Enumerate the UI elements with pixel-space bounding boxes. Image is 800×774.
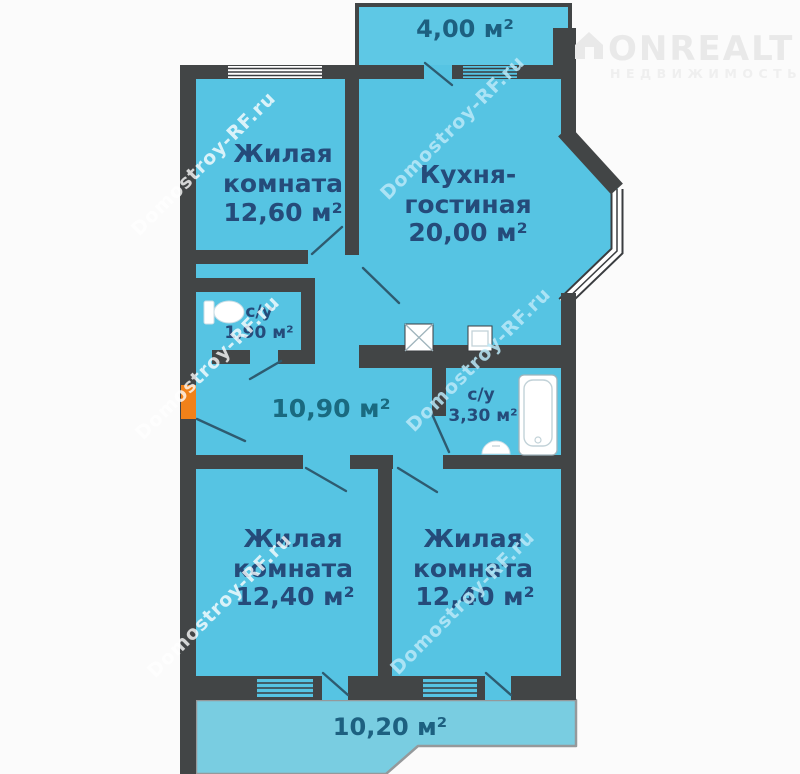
- wall-wc1-top: [196, 278, 315, 292]
- wall-right-upper: [561, 65, 576, 137]
- wall-hall-bottom-mid: [350, 455, 393, 469]
- toilet-tank-icon: [204, 301, 214, 324]
- logo-subtitle: НЕДВИЖИМОСТЬ: [610, 66, 800, 81]
- wall-bottom: [180, 676, 576, 700]
- wall-living1-bottom: [196, 250, 308, 264]
- hall-area: 10,90 м²: [271, 394, 390, 423]
- door-opening-living2-balcony: [322, 676, 348, 700]
- house-icon-door: [585, 47, 594, 59]
- wall-living1-kitchen: [345, 79, 359, 255]
- living1-area: 12,60 м²: [223, 198, 342, 227]
- kitchen-label-1: Кухня-: [420, 160, 517, 189]
- wc2-area: 3,30 м²: [448, 406, 517, 426]
- floorplan-svg: 4,00 м² Жилая комната 12,60 м² Кухня- го…: [0, 0, 800, 774]
- balcony-top-label: 4,00 м²: [416, 15, 514, 43]
- wall-balcony-corner: [553, 28, 576, 68]
- living1-label-1: Жилая: [233, 139, 332, 168]
- kitchen-label-2: гостиная: [404, 190, 531, 219]
- wall-wc1-right: [301, 278, 315, 364]
- wc2-label: с/у: [467, 385, 494, 405]
- kitchen-area: 20,00 м²: [408, 218, 527, 247]
- floorplan-image: 4,00 м² Жилая комната 12,60 м² Кухня- го…: [0, 0, 800, 774]
- wall-living2-living3: [378, 469, 392, 676]
- door-opening-living3-balcony: [485, 676, 511, 700]
- living2-label-1: Жилая: [243, 524, 342, 553]
- balcony-bottom-label: 10,20 м²: [333, 713, 447, 741]
- onrealt-logo: ONREALT НЕДВИЖИМОСТЬ: [575, 29, 800, 81]
- living1-label-2: комната: [223, 169, 343, 198]
- logo-title: ONREALT: [608, 29, 794, 69]
- wall-hall-bottom-left: [196, 455, 303, 469]
- wall-hall-bottom-right: [443, 455, 561, 469]
